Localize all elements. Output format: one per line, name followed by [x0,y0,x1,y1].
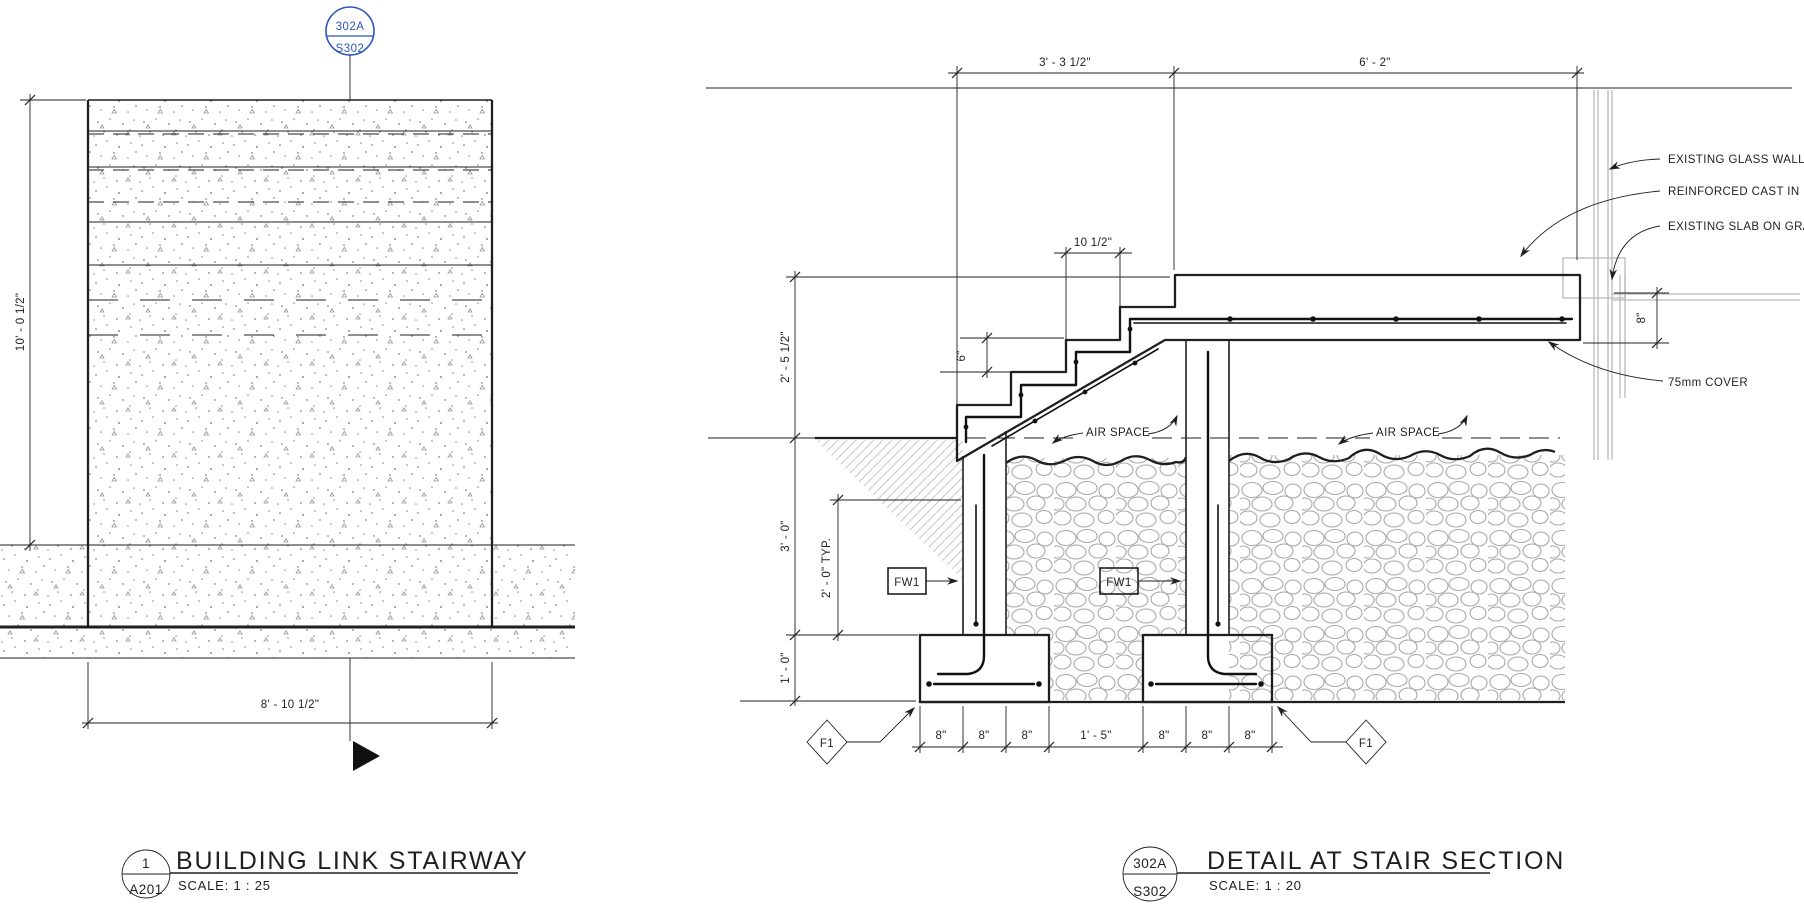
dim-text-landing-height: 2' - 5 1/2" [780,331,792,383]
right-view: 3' - 3 1/2" 6' - 2" 2' - 5 1/2" 3' - 0" … [706,57,1804,901]
air-space-label-left: AIR SPACE [1053,416,1177,443]
dim-top-chain: 3' - 3 1/2" 6' - 2" [948,57,1584,435]
fw1-tag-left: FW1 [888,568,957,594]
leader-cast-in-place [1521,191,1660,256]
air-space-label-right: AIR SPACE [1339,416,1467,444]
callout-sheet-number: S302 [336,43,365,55]
wall-concrete-fill [88,100,492,627]
f1-tag-right: F1 [1278,707,1386,764]
dim-text-bottom-5: 8" [1158,730,1169,742]
slab-band-right-fill [492,545,575,627]
leader-cover [1549,342,1663,381]
section-callout-bubble[interactable]: 302A S302 [326,7,374,55]
earth-hatch [815,440,963,580]
gravel-area-right [1229,455,1565,700]
dim-wall-height: 10' - 0 1/2" [15,94,86,551]
dim-text-bottom-3: 8" [1021,730,1032,742]
leader-curve [1339,433,1373,444]
dim-text-stair-run: 3' - 3 1/2" [1039,57,1091,69]
dim-text-wall-height: 3' - 0" [780,520,792,551]
existing-gray-elements [1563,90,1800,460]
left-view: 302A S302 10' - 0 1/2" [0,7,575,898]
view-title-text: DETAIL AT STAIR SECTION [1207,847,1565,875]
label-glass-wall: EXISTING GLASS WALL [1668,154,1804,166]
dim-wall-width: 8' - 10 1/2" [82,662,498,729]
dim-text-riser: 6" [956,350,968,361]
wall-elevation [0,100,575,658]
label-slab-on-grade: EXISTING SLAB ON GRAD [1668,221,1804,233]
dim-slab-thickness: 8" [1583,287,1669,349]
dim-text-bottom-6: 8" [1201,730,1212,742]
drawing-canvas: 302A S302 10' - 0 1/2" [0,0,1804,913]
dim-text-typ: 2' - 0" TYP. [821,538,833,598]
air-space-text: AIR SPACE [1376,427,1440,439]
dim-text-bottom-7: 8" [1244,730,1255,742]
gravel-area-center [1006,458,1186,635]
dim-tread: 10 1/2" [1054,237,1132,366]
slab-band-left-fill [0,545,88,627]
tag-text: F1 [820,738,834,750]
dim-text-bottom-4: 1' - 5" [1080,730,1111,742]
dim-text-height: 10' - 0 1/2" [15,293,27,351]
lower-band-fill [0,627,575,658]
dim-text-tread: 10 1/2" [1074,237,1112,249]
label-cast-in-place: REINFORCED CAST IN PLA [1668,186,1804,198]
dim-text-bottom-1: 8" [935,730,946,742]
gravel-area-between-footings [1049,635,1143,700]
view-scale-text: SCALE: 1 : 20 [1209,878,1302,893]
view-scale-text: SCALE: 1 : 25 [178,878,271,893]
title-number: 1 [142,856,150,871]
tag-text: FW1 [894,577,919,589]
stair-concrete-section [957,275,1580,461]
f1-tag-left: F1 [807,708,914,764]
dim-text-width: 8' - 10 1/2" [261,699,319,711]
tag-text: FW1 [1106,577,1131,589]
dim-text-slab: 8" [1636,312,1648,323]
tag-leader [847,708,914,742]
gravel-fill [1006,449,1565,700]
section-arrow-icon [353,741,380,771]
view-title-text: BUILDING LINK STAIRWAY [176,847,529,875]
leader-glass-wall [1610,159,1660,169]
dim-bottom-chain: 8" 8" 8" 1' - 5" 8" 8" 8" [912,706,1283,753]
leader-slab-on-grade [1612,226,1660,279]
title-sheet: S302 [1133,884,1167,899]
dim-text-footing-height: 1' - 0" [780,652,792,683]
title-number: 302A [1133,856,1167,871]
label-cover: 75mm COVER [1668,377,1748,389]
drawing-sheet: 302A S302 10' - 0 1/2" [0,0,1804,913]
title-sheet: A201 [129,882,163,897]
tag-leader [1278,707,1346,742]
leader-curve [1438,416,1467,434]
stair-stepped-bar [966,319,1572,442]
air-space-text: AIR SPACE [1086,427,1150,439]
leader-curve [1148,416,1177,434]
tag-text: F1 [1359,738,1373,750]
right-view-title: 302A S302 DETAIL AT STAIR SECTION SCALE:… [1123,847,1565,901]
left-view-title: 1 A201 BUILDING LINK STAIRWAY SCALE: 1 :… [122,847,529,898]
dim-text-bottom-2: 8" [978,730,989,742]
dim-text-landing-run: 6' - 2" [1359,57,1390,69]
callout-detail-number: 302A [336,21,365,33]
